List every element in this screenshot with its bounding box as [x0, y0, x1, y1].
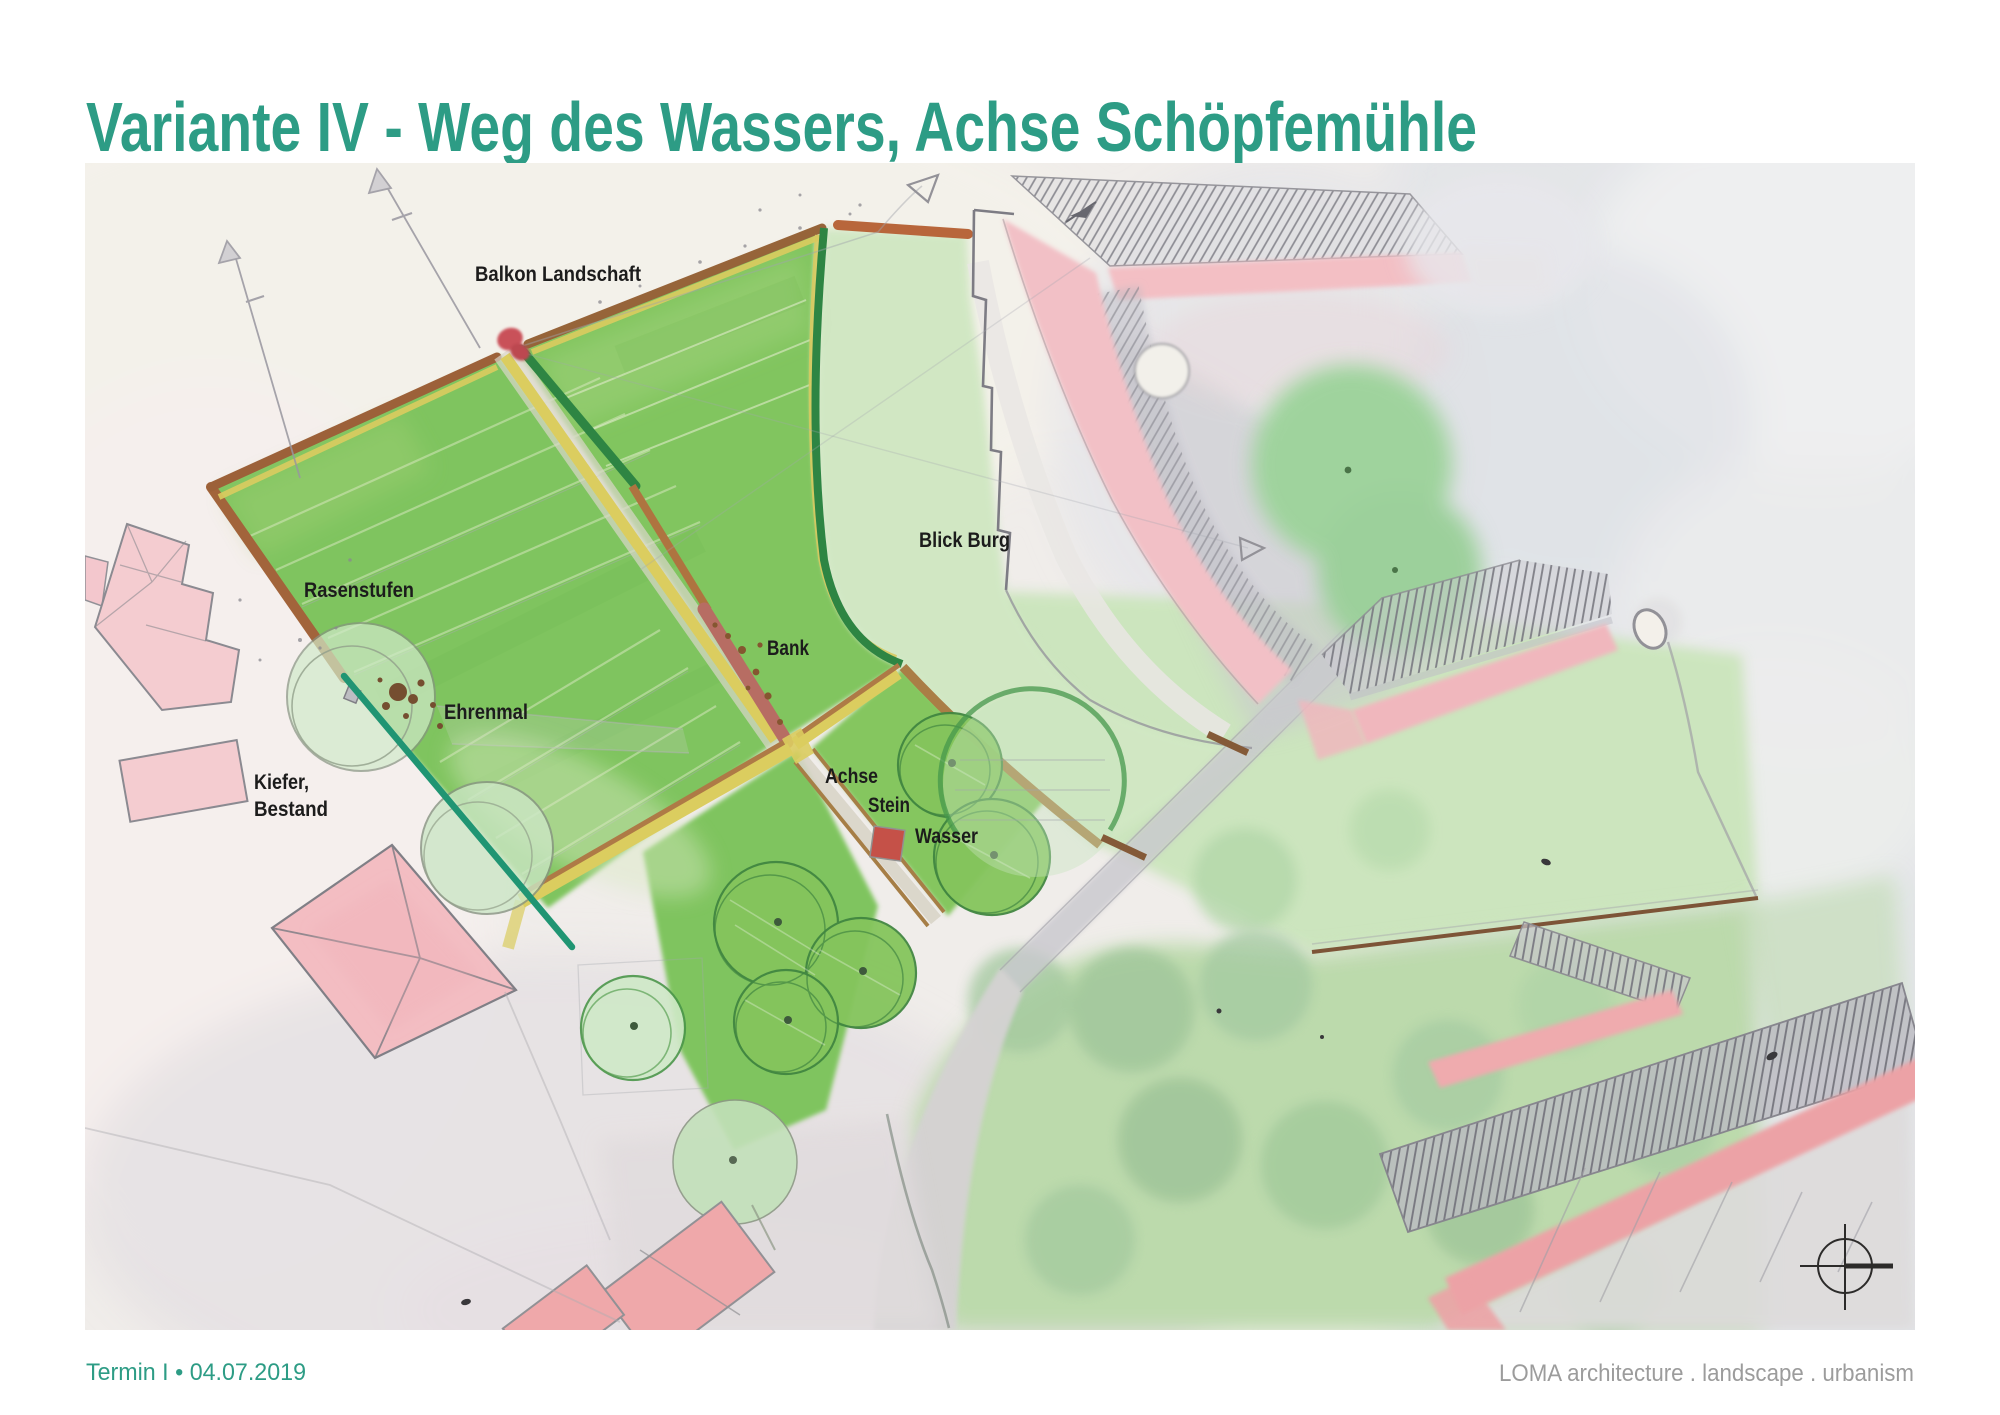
svg-text:Achse: Achse: [825, 764, 878, 788]
svg-text:Balkon Landschaft: Balkon Landschaft: [475, 262, 641, 286]
svg-text:Wasser: Wasser: [915, 824, 979, 848]
svg-text:Bestand: Bestand: [254, 797, 328, 821]
svg-text:Blick Burg: Blick Burg: [919, 528, 1010, 552]
svg-text:Termin I • 04.07.2019: Termin I • 04.07.2019: [86, 1359, 306, 1386]
svg-text:Stein: Stein: [868, 793, 910, 817]
svg-text:LOMA architecture . landscape: LOMA architecture . landscape . urbanism: [1499, 1360, 1914, 1387]
svg-text:Rasenstufen: Rasenstufen: [304, 578, 414, 602]
svg-text:Kiefer,: Kiefer,: [254, 770, 309, 794]
svg-text:Variante IV - Weg des Wassers,: Variante IV - Weg des Wassers, Achse Sch…: [86, 88, 1477, 166]
svg-text:Ehrenmal: Ehrenmal: [444, 700, 528, 724]
svg-text:Bank: Bank: [767, 636, 809, 660]
